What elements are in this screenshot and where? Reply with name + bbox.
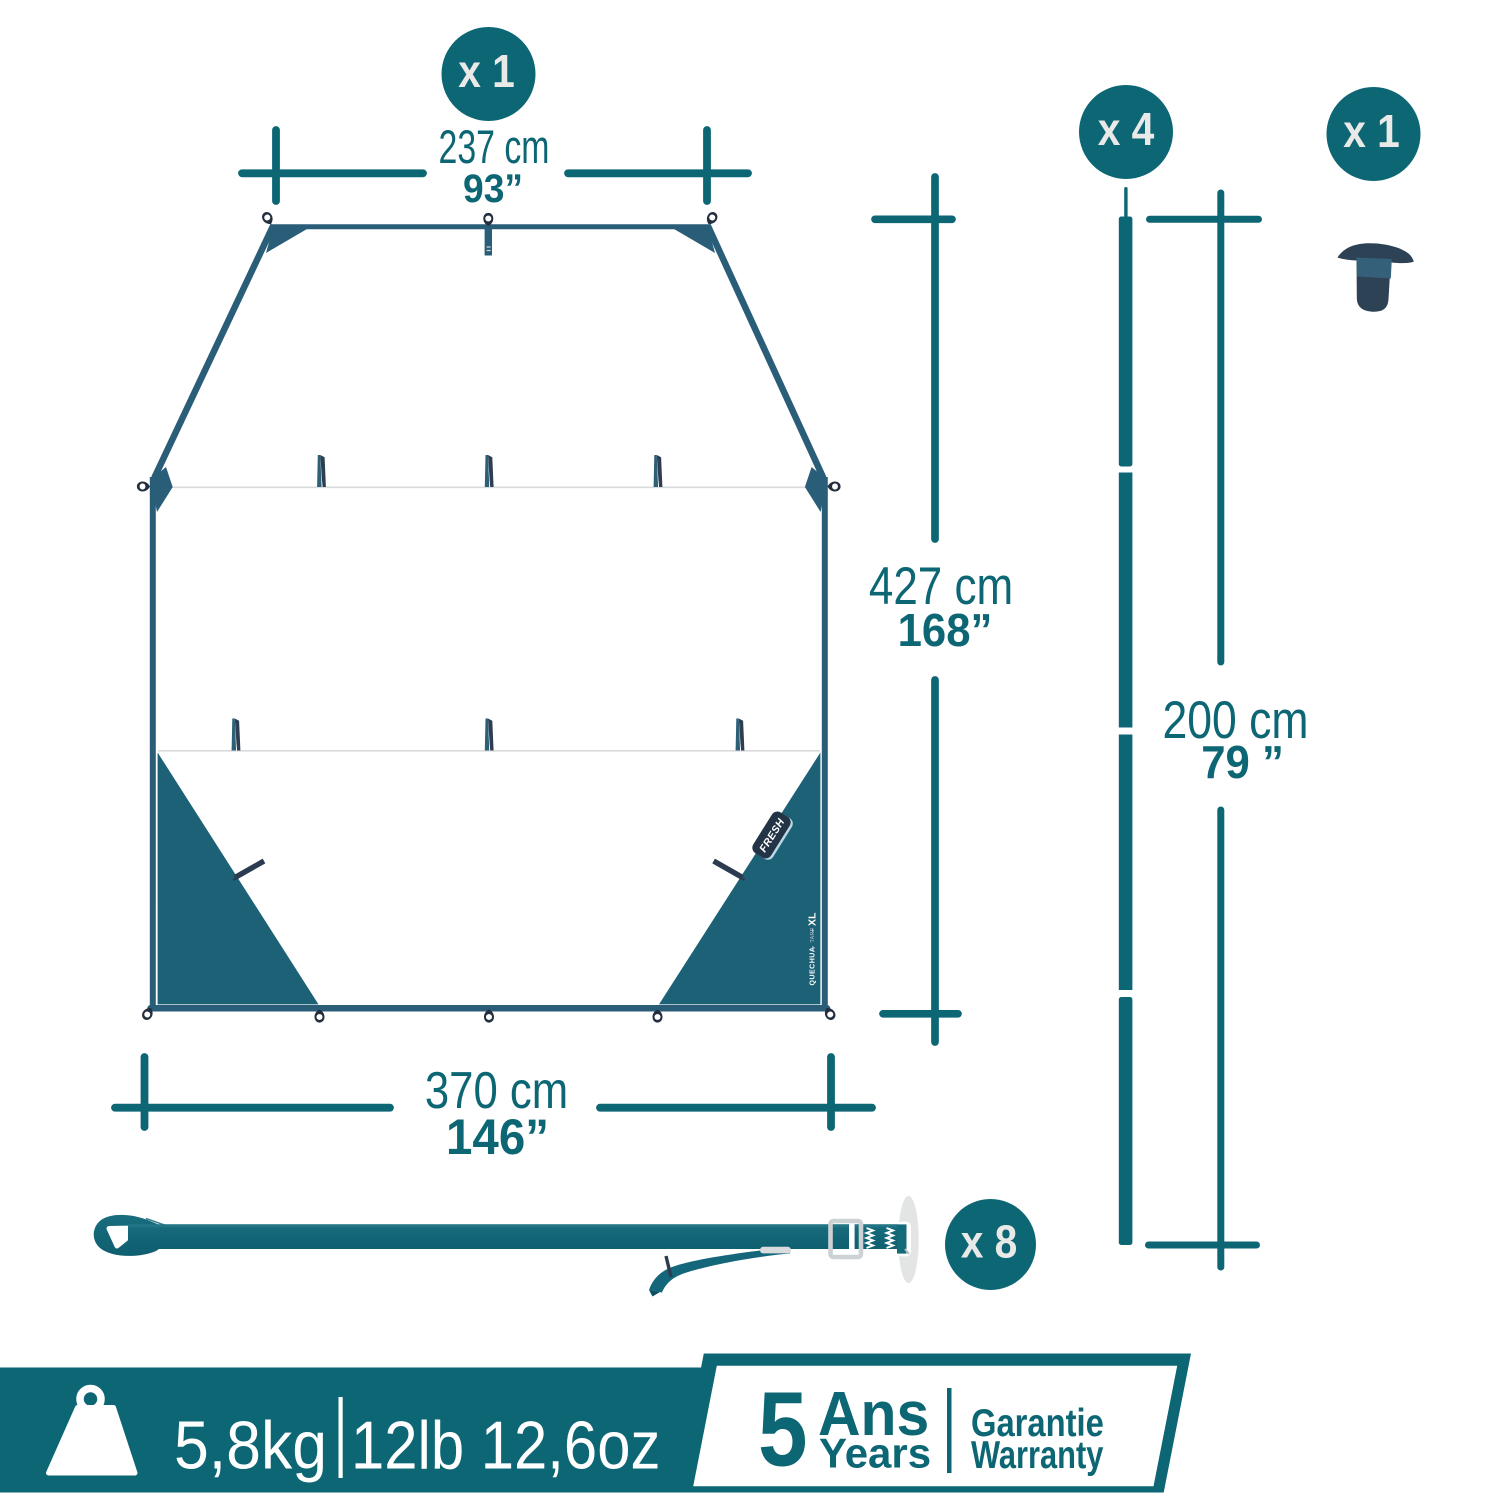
svg-text:x 8: x 8 [961, 1217, 1018, 1268]
svg-text:146”: 146” [446, 1110, 549, 1165]
svg-text:5: 5 [758, 1369, 808, 1488]
svg-text:93”: 93” [463, 167, 523, 212]
svg-text:x 1: x 1 [458, 47, 515, 98]
svg-text:168”: 168” [898, 604, 993, 656]
svg-text:Warranty: Warranty [971, 1434, 1104, 1477]
svg-text:237 cm: 237 cm [439, 121, 550, 174]
svg-text:79 ”: 79 ” [1201, 736, 1284, 788]
svg-text:x 1: x 1 [1343, 107, 1400, 158]
svg-text:5,8kg: 5,8kg [174, 1407, 327, 1483]
svg-text:QUECHUA: QUECHUA [810, 947, 817, 986]
svg-text:x 4: x 4 [1098, 105, 1155, 156]
svg-text:Years: Years [819, 1430, 931, 1477]
svg-text:12lb 12,6oz: 12lb 12,6oz [351, 1407, 660, 1483]
svg-text:XL: XL [806, 912, 818, 926]
